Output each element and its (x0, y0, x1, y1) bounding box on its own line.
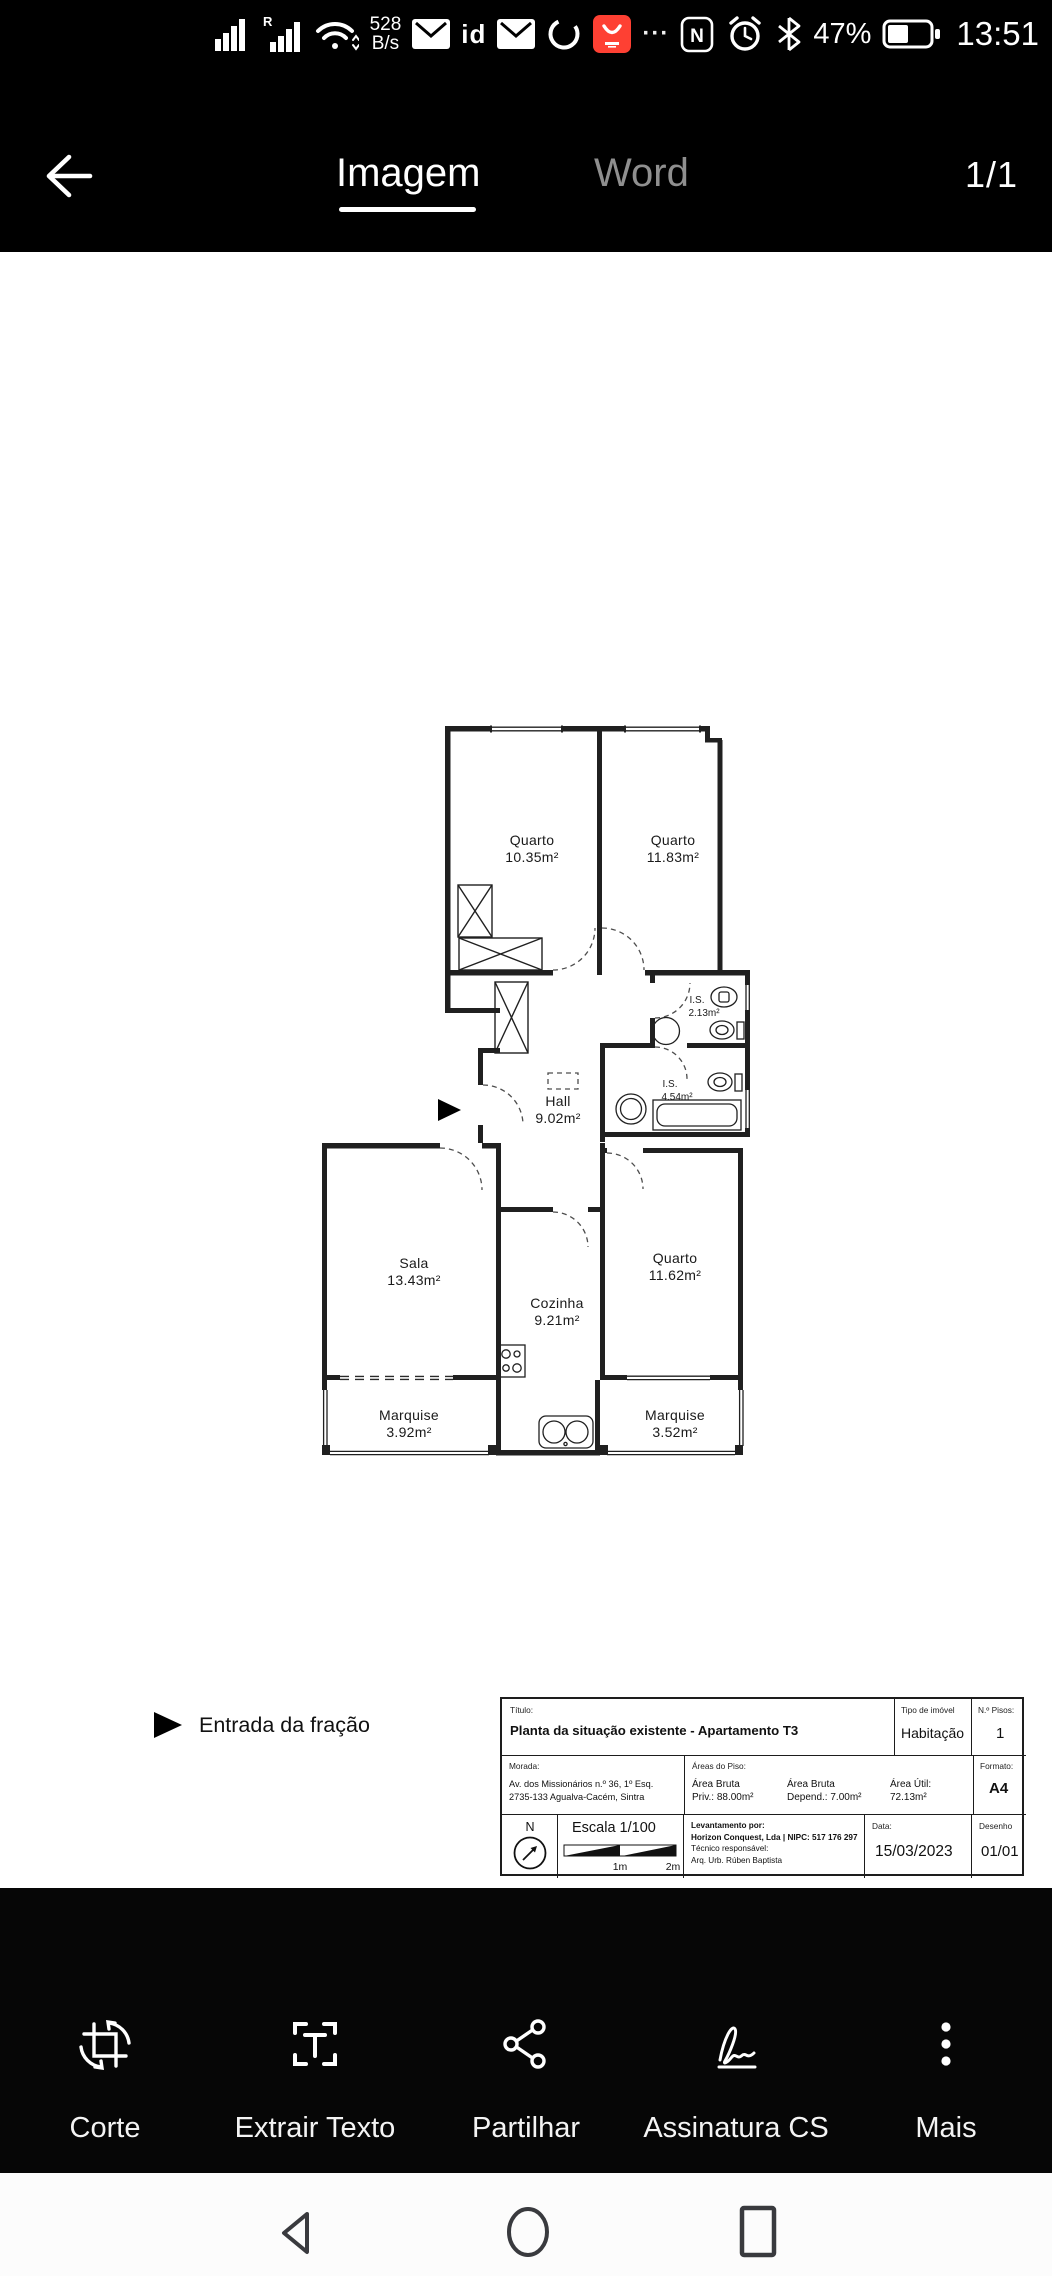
status-time: 13:51 (956, 15, 1039, 53)
entrance-arrow (438, 1099, 461, 1121)
share-label: Partilhar (472, 2112, 580, 2145)
network-speed-unit: B/s (370, 34, 402, 53)
room-area-hall: 9.02m² (535, 1110, 580, 1126)
entrance-arrow-icon (152, 1710, 184, 1740)
more-dots-icon (918, 2016, 974, 2077)
tab-imagem-underline (339, 207, 476, 212)
network-speed: 528 B/s (370, 15, 402, 53)
tecnico-label: Técnico responsável: (691, 1843, 858, 1855)
room-area-marquise2: 3.52m² (652, 1424, 697, 1440)
morada-line1: Av. dos Missionários n.º 36, 1º Esq. (509, 1778, 653, 1791)
scale-mark-1m: 1m (613, 1861, 628, 1873)
room-area-sala: 13.43m² (387, 1272, 440, 1288)
compass-n: N (525, 1820, 534, 1834)
titleblock-levantamento-cell: Levantamento por: Horizon Conquest, Lda … (683, 1814, 864, 1878)
room-area-is2: 4.54m² (661, 1092, 693, 1103)
desenho-label: Desenho (979, 1821, 1012, 1831)
north-compass-icon: N (502, 1815, 557, 1878)
formato-value: A4 (989, 1780, 1008, 1797)
scale-bar: 1m 2m (558, 1840, 683, 1878)
titulo-label: Título: (510, 1705, 533, 1715)
escala-value: Escala 1/100 (572, 1820, 656, 1836)
area-util-line1: Área Útil: (890, 1778, 931, 1791)
titleblock-areas-cell: Áreas do Piso: Área Bruta Priv.: 88.00m²… (684, 1755, 973, 1814)
morada-label: Morada: (509, 1761, 539, 1771)
room-label-cozinha: Cozinha (530, 1295, 583, 1311)
more-button[interactable]: Mais (846, 1888, 1046, 2173)
titleblock-escala-cell: Escala 1/100 1m 2m (557, 1814, 683, 1878)
tipo-label: Tipo de imóvel (901, 1705, 955, 1715)
nfc-icon: N (680, 14, 714, 54)
title-block: Título: Planta da situação existente - A… (500, 1697, 1024, 1876)
page-indicator: 1/1 (965, 154, 1018, 196)
room-area-is1: 2.13m² (688, 1008, 720, 1019)
titleblock-desenho-cell: Desenho 01/01 (971, 1814, 1026, 1878)
nav-home-icon[interactable] (504, 2206, 552, 2263)
alarm-clock-icon (725, 14, 765, 54)
desenho-value: 01/01 (981, 1843, 1019, 1860)
titleblock-morada-cell: Morada: Av. dos Missionários n.º 36, 1º … (502, 1755, 684, 1814)
room-area-marquise1: 3.92m² (386, 1424, 431, 1440)
room-area-quarto2: 11.83m² (647, 849, 699, 865)
bottom-toolbar: Corte Extrair Texto Partilhar Assinatura… (0, 1888, 1052, 2173)
signature-label: Assinatura CS (643, 2112, 828, 2145)
titleblock-titulo-cell: Título: Planta da situação existente - A… (502, 1699, 894, 1755)
area-bruta-priv-line1: Área Bruta (692, 1778, 754, 1791)
signature-icon (707, 2016, 765, 2079)
room-area-quarto3: 11.62m² (649, 1267, 701, 1283)
sim-id-icon: id (461, 19, 486, 50)
data-label: Data: (872, 1821, 892, 1831)
mail-icon-2 (497, 19, 535, 49)
levantamento-label: Levantamento por: (691, 1820, 858, 1832)
room-area-quarto1: 10.35m² (505, 849, 558, 865)
extract-text-icon (287, 2016, 343, 2077)
share-button[interactable]: Partilhar (426, 1888, 626, 2173)
extract-text-button[interactable]: Extrair Texto (215, 1888, 415, 2173)
extract-text-label: Extrair Texto (235, 2112, 396, 2145)
signal-bars-icon (215, 15, 251, 53)
tecnico-value: Arq. Urb. Rúben Baptista (691, 1855, 858, 1867)
legend-entrance: Entrada da fração (152, 1710, 370, 1740)
more-label: Mais (915, 2112, 976, 2145)
titleblock-formato-cell: Formato: A4 (973, 1755, 1026, 1814)
status-bar: R 528 B/s id ··· N 47% 13:51 (0, 0, 1052, 64)
nav-back-icon[interactable] (274, 2209, 322, 2262)
room-label-quarto2: Quarto (651, 832, 696, 848)
room-label-hall: Hall (545, 1093, 570, 1109)
document-image-view[interactable]: Quarto 10.35m² Quarto 11.83m² Hall 9.02m… (0, 252, 1052, 1888)
wifi-icon (315, 15, 359, 53)
bluetooth-icon (776, 15, 802, 53)
mail-icon (412, 19, 450, 49)
system-navbar (0, 2173, 1052, 2276)
room-label-quarto3: Quarto (653, 1250, 698, 1266)
share-icon (498, 2016, 554, 2077)
room-label-marquise2: Marquise (645, 1407, 705, 1423)
areas-label: Áreas do Piso: (692, 1761, 746, 1771)
titleblock-pisos-cell: N.º Pisos: 1 (971, 1699, 1026, 1755)
room-label-marquise1: Marquise (379, 1407, 439, 1423)
room-area-cozinha: 9.21m² (534, 1312, 579, 1328)
nfc-label: N (690, 26, 704, 47)
battery-icon (882, 17, 942, 51)
scale-mark-2m: 2m (666, 1861, 681, 1873)
overflow-dots-icon: ··· (642, 20, 669, 48)
titleblock-tipo-cell: Tipo de imóvel Habitação (894, 1699, 971, 1755)
tab-imagem[interactable]: Imagem (336, 151, 481, 196)
area-bruta-priv-line2: Priv.: 88.00m² (692, 1791, 754, 1804)
room-label-is1: I.S. (689, 995, 704, 1006)
roaming-label: R (263, 14, 273, 29)
tab-word[interactable]: Word (594, 151, 689, 196)
levantamento-company: Horizon Conquest, Lda | NIPC: 517 176 29… (691, 1832, 858, 1844)
crop-button[interactable]: Corte (5, 1888, 205, 2173)
area-bruta-depend-line2: Depend.: 7.00m² (787, 1791, 862, 1804)
nav-recents-icon[interactable] (737, 2204, 781, 2265)
morada-line2: 2735-133 Agualva-Cacém, Sintra (509, 1791, 653, 1804)
sync-ring-icon (546, 16, 582, 52)
signature-button[interactable]: Assinatura CS (636, 1888, 836, 2173)
pisos-label: N.º Pisos: (978, 1705, 1014, 1715)
room-label-is2: I.S. (662, 1079, 677, 1090)
back-button[interactable] (44, 153, 94, 204)
titleblock-data-cell: Data: 15/03/2023 (864, 1814, 971, 1878)
area-util-line2: 72.13m² (890, 1791, 931, 1804)
crop-icon (76, 2016, 134, 2079)
pisos-value: 1 (996, 1725, 1004, 1742)
room-label-quarto1: Quarto (510, 832, 555, 848)
network-speed-value: 528 (370, 15, 402, 34)
floorplan-drawing: Quarto 10.35m² Quarto 11.83m² Hall 9.02m… (295, 700, 765, 1490)
data-value: 15/03/2023 (875, 1843, 953, 1861)
room-label-sala: Sala (399, 1255, 428, 1271)
battery-percent: 47% (813, 18, 871, 51)
signal-bars-roaming-icon: R (262, 14, 304, 54)
legend-entrance-label: Entrada da fração (199, 1713, 370, 1738)
titleblock-compass-cell: N (502, 1814, 557, 1878)
area-bruta-depend-line1: Área Bruta (787, 1778, 862, 1791)
store-app-badge-icon (593, 15, 631, 53)
crop-label: Corte (70, 2112, 141, 2145)
titulo-value: Planta da situação existente - Apartamen… (510, 1723, 798, 1738)
formato-label: Formato: (980, 1761, 1013, 1771)
tipo-value: Habitação (901, 1725, 964, 1741)
